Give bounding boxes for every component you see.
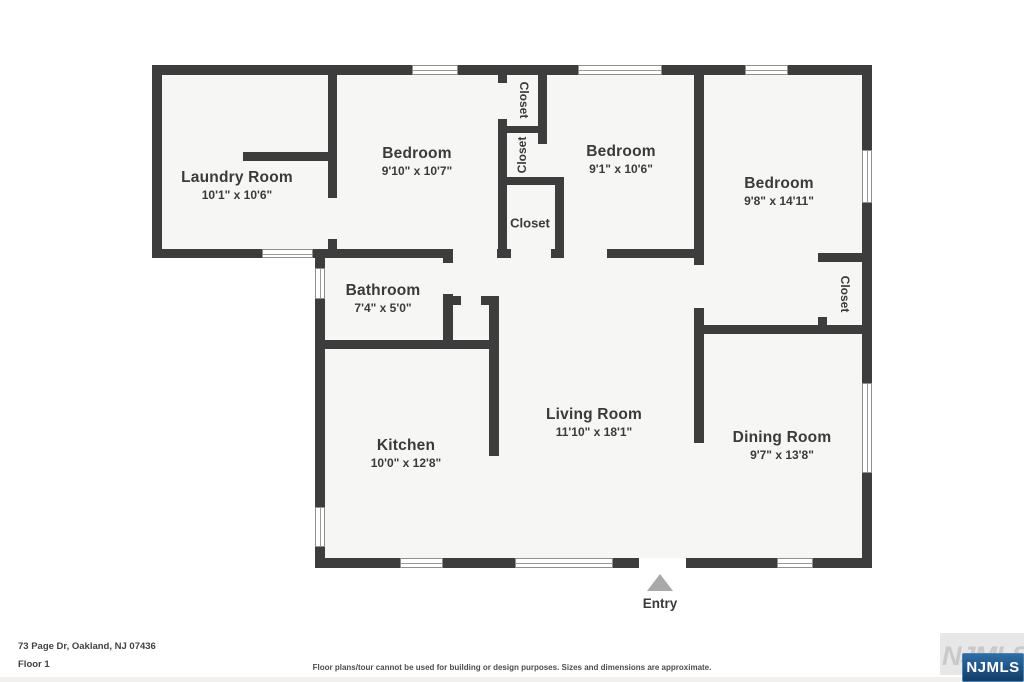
room-name: Living Room bbox=[546, 406, 642, 424]
njmls-logo: NJMLS bbox=[962, 653, 1024, 682]
wall bbox=[315, 340, 499, 349]
closet-label-hall: Closet bbox=[510, 216, 550, 231]
entry-opening bbox=[639, 558, 686, 568]
room-label-bathroom: Bathroom 7'4" x 5'0" bbox=[346, 282, 421, 316]
wall bbox=[694, 258, 704, 265]
entry-label: Entry bbox=[643, 596, 678, 611]
wall bbox=[686, 558, 778, 568]
wall bbox=[694, 325, 872, 334]
room-dims: 10'1" x 10'6" bbox=[181, 189, 293, 203]
wall bbox=[489, 296, 499, 456]
closet-label-middle: Closet bbox=[515, 137, 529, 174]
window bbox=[400, 558, 443, 568]
wall bbox=[818, 253, 872, 262]
room-name: Bedroom bbox=[586, 143, 655, 161]
room-name: Bedroom bbox=[382, 145, 452, 163]
room-label-bedroom-3: Bedroom 9'8" x 14'11" bbox=[744, 175, 814, 209]
wall bbox=[443, 249, 453, 263]
disclaimer-text: Floor plans/tour cannot be used for buil… bbox=[0, 663, 1024, 672]
wall bbox=[607, 249, 704, 258]
wall bbox=[328, 65, 337, 198]
wall bbox=[315, 298, 325, 508]
room-name: Kitchen bbox=[371, 437, 441, 455]
room-label-kitchen: Kitchen 10'0" x 12'8" bbox=[371, 437, 441, 471]
wall bbox=[498, 65, 507, 83]
wall bbox=[447, 296, 461, 305]
floorplan-page: Laundry Room 10'1" x 10'6" Bedroom 9'10"… bbox=[0, 0, 1024, 682]
window bbox=[262, 249, 313, 258]
njmls-logo-text: NJMLS bbox=[966, 659, 1019, 676]
wall bbox=[538, 65, 547, 144]
room-dims: 10'0" x 12'8" bbox=[371, 457, 441, 471]
room-dims: 9'8" x 14'11" bbox=[744, 195, 814, 209]
wall bbox=[862, 472, 872, 568]
window bbox=[315, 507, 325, 547]
room-dims: 9'1" x 10'6" bbox=[586, 163, 655, 177]
window bbox=[315, 268, 325, 299]
window bbox=[777, 558, 813, 568]
room-label-laundry: Laundry Room 10'1" x 10'6" bbox=[181, 169, 293, 203]
wall bbox=[612, 558, 639, 568]
room-label-bedroom-2: Bedroom 9'1" x 10'6" bbox=[586, 143, 655, 177]
closet-label-bedroom3: Closet bbox=[838, 276, 852, 313]
window bbox=[578, 65, 662, 75]
wall bbox=[694, 65, 704, 258]
room-label-dining-room: Dining Room 9'7" x 13'8" bbox=[733, 429, 832, 463]
window bbox=[745, 65, 788, 75]
wall bbox=[818, 317, 827, 334]
entry-arrow-icon bbox=[647, 574, 673, 591]
window bbox=[412, 65, 458, 75]
window bbox=[862, 150, 872, 203]
wall bbox=[862, 65, 872, 151]
page-edge-divider bbox=[0, 677, 1024, 682]
room-dims: 9'7" x 13'8" bbox=[733, 449, 832, 463]
room-name: Dining Room bbox=[733, 429, 832, 447]
wall bbox=[243, 152, 337, 161]
wall bbox=[442, 558, 516, 568]
window bbox=[515, 558, 613, 568]
wall bbox=[862, 202, 872, 384]
window bbox=[862, 383, 872, 473]
wall bbox=[328, 239, 337, 258]
room-name: Bathroom bbox=[346, 282, 421, 300]
wall bbox=[555, 185, 564, 258]
room-name: Laundry Room bbox=[181, 169, 293, 187]
address-text: 73 Page Dr, Oakland, NJ 07436 bbox=[18, 641, 156, 652]
room-dims: 11'10" x 18'1" bbox=[546, 426, 642, 440]
wall bbox=[152, 65, 162, 258]
room-dims: 9'10" x 10'7" bbox=[382, 165, 452, 179]
room-label-living-room: Living Room 11'10" x 18'1" bbox=[546, 406, 642, 440]
closet-label-top: Closet bbox=[517, 82, 531, 119]
wall bbox=[498, 177, 564, 185]
room-label-bedroom-1: Bedroom 9'10" x 10'7" bbox=[382, 145, 452, 179]
room-dims: 7'4" x 5'0" bbox=[346, 302, 421, 316]
wall bbox=[315, 558, 401, 568]
wall bbox=[315, 249, 325, 269]
room-name: Bedroom bbox=[744, 175, 814, 193]
wall bbox=[498, 119, 507, 258]
